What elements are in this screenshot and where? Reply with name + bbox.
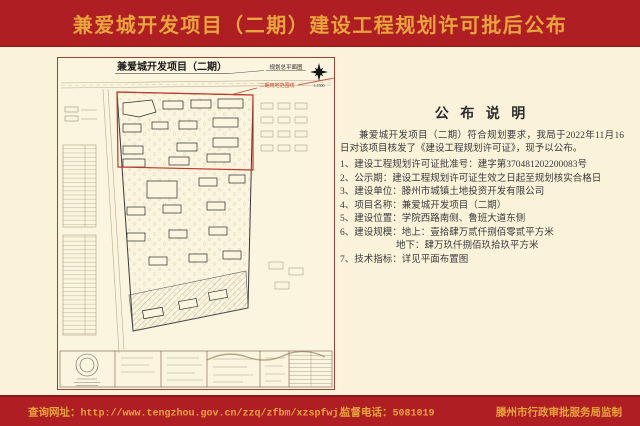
phase-boundary-label: 二期用地范围线 bbox=[259, 82, 294, 89]
query-url-label: 查询网址： bbox=[28, 407, 81, 418]
notice-item-6-continued: 地下：肆万玖仟捌佰玖拾玖平方米 bbox=[340, 240, 624, 254]
plan-title: 兼爱城开发项目（二期） bbox=[117, 60, 227, 73]
announcement-page: 兼爱城开发项目（二期）建设工程规划许可批后公布 bbox=[0, 0, 640, 426]
notice-item-6: 6、建设规模：地上：壹拾肆万贰仟捌佰零贰平方米 bbox=[340, 227, 624, 241]
producer-credit: 滕州市行政审批服务局监制 bbox=[496, 404, 622, 419]
site-plan-drawing: 二期用地范围线 兼爱城开发项目（二期） 规划 bbox=[57, 57, 335, 390]
notice-item-1: 1、建设工程规划许可证批准号：建字第370481202200083号 bbox=[340, 159, 624, 173]
page-footer: 查询网址：http://www.tengzhou.gov.cn/zzq/zfbm… bbox=[0, 395, 640, 426]
notice-panel: 公 布 说 明 兼爱城开发项目（二期）符合规划要求，我局于2022年11月16日… bbox=[340, 103, 624, 267]
notice-items: 1、建设工程规划许可证批准号：建字第370481202200083号 2、公示期… bbox=[340, 159, 624, 267]
plan-subtitle: 规划总平面图 bbox=[269, 63, 303, 71]
notice-heading: 公 布 说 明 bbox=[340, 103, 624, 123]
content-area: 二期用地范围线 兼爱城开发项目（二期） 规划 bbox=[0, 47, 640, 395]
notice-item-4: 4、项目名称：兼爱城开发项目（二期） bbox=[340, 200, 624, 214]
site-plan: 二期用地范围线 兼爱城开发项目（二期） 规划 bbox=[57, 57, 335, 390]
query-url: 查询网址：http://www.tengzhou.gov.cn/zzq/zfbm… bbox=[28, 404, 345, 419]
page-header: 兼爱城开发项目（二期）建设工程规划许可批后公布 bbox=[0, 0, 640, 47]
notice-item-7: 7、技术指标：详见平面布置图 bbox=[340, 254, 624, 268]
notice-item-2: 2、公示期：建设工程规划许可证生效之日起至规划核实合格日 bbox=[340, 173, 624, 187]
query-url-value: http://www.tengzhou.gov.cn/zzq/zfbm/xzsp… bbox=[81, 408, 345, 419]
plan-scale: 1:1500 bbox=[313, 83, 324, 88]
phone-label: 监督电话： bbox=[340, 407, 393, 418]
page-title: 兼爱城开发项目（二期）建设工程规划许可批后公布 bbox=[73, 9, 568, 38]
supervision-phone: 监督电话：5081019 bbox=[340, 404, 435, 419]
notice-intro: 兼爱城开发项目（二期）符合规划要求，我局于2022年11月16日对该项目核发了《… bbox=[340, 130, 624, 156]
notice-item-3: 3、建设单位：滕州市城镇土地投资开发有限公司 bbox=[340, 186, 624, 200]
notice-item-5: 5、建设位置：学院西路南侧、鲁班大道东侧 bbox=[340, 213, 624, 227]
phone-value: 5081019 bbox=[393, 408, 435, 419]
indicator-tables bbox=[63, 145, 96, 335]
